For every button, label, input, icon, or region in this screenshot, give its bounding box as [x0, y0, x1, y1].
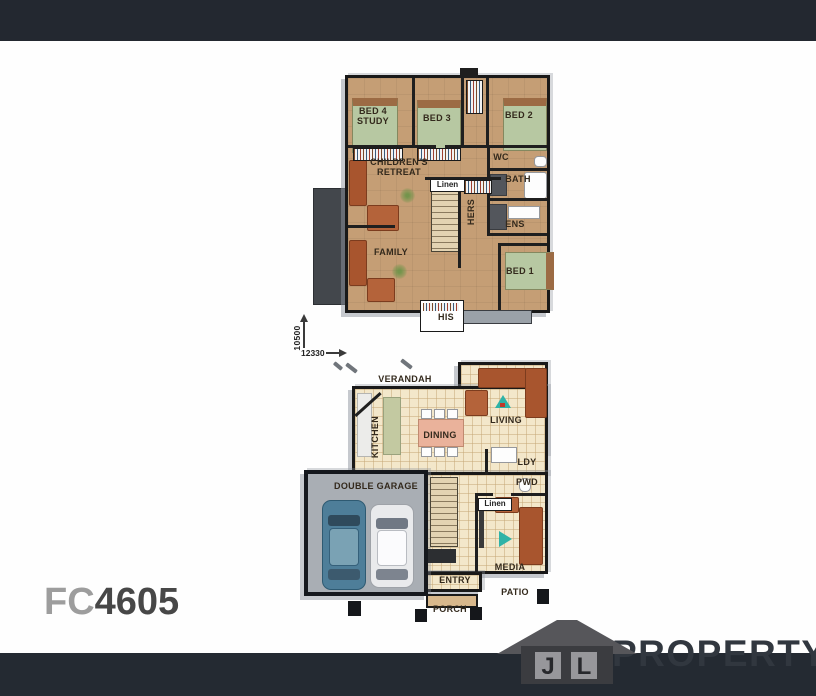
room-label-retreat-line2: RETREAT — [377, 167, 421, 177]
chair-icon — [434, 447, 445, 457]
room-label-ens: ENS — [500, 219, 530, 229]
dimension-line-horizontal — [326, 352, 339, 354]
linen-label-upper: Linen — [430, 179, 465, 192]
wall — [487, 233, 547, 236]
brand-letter-j: J — [541, 653, 554, 680]
ceiling-fan-icon — [400, 188, 415, 203]
wall — [487, 198, 547, 201]
patio-pillar — [537, 589, 549, 604]
car-white-icon — [370, 504, 414, 588]
dimension-arrow-right — [339, 349, 347, 357]
room-label-porch: PORCH — [424, 604, 476, 614]
room-label-living: LIVING — [480, 415, 532, 425]
wardrobe-icon — [464, 180, 492, 194]
room-label-bath: BATH — [500, 174, 536, 184]
sofa-icon — [367, 278, 395, 302]
chair-icon — [421, 447, 432, 457]
car-blue-icon — [322, 500, 366, 590]
wall — [498, 243, 501, 310]
stair-landing — [428, 549, 456, 563]
brand-letter-l: L — [577, 653, 592, 680]
top-bar — [0, 0, 816, 41]
linen-closet-icon — [466, 80, 483, 114]
room-label-bed4-line2: STUDY — [357, 116, 389, 126]
dimension-width: 12330 — [301, 348, 325, 358]
room-label-his: HIS — [428, 312, 464, 322]
floorplan-page: BED 4 STUDY BED 3 BED 2 WC BATH CHILDREN… — [0, 0, 816, 696]
stairs-icon — [430, 477, 458, 547]
wall — [348, 225, 395, 228]
wall — [461, 78, 464, 146]
bed-icon — [503, 98, 547, 151]
room-label-bed1: BED 1 — [498, 266, 542, 276]
room-label-patio: PATIO — [492, 587, 538, 597]
chair-icon — [447, 409, 458, 419]
room-label-bed4: BED 4 STUDY — [345, 106, 401, 126]
wall — [485, 449, 488, 475]
roof-section — [313, 188, 348, 305]
plan-code: FC4605 — [44, 581, 179, 624]
chair-icon — [421, 409, 432, 419]
room-label-wc: WC — [488, 152, 514, 162]
room-label-bed2: BED 2 — [496, 110, 542, 120]
room-label-kitchen: KITCHEN — [370, 412, 380, 462]
roof-step — [460, 310, 532, 324]
toilet-icon — [534, 156, 547, 167]
chair-icon — [447, 447, 458, 457]
plan-code-number: 4605 — [95, 581, 180, 623]
wall — [498, 243, 547, 246]
wall — [486, 78, 489, 146]
fan-center-dot — [500, 403, 505, 407]
room-label-retreat-line1: CHILDREN'S — [370, 157, 428, 167]
room-label-media: MEDIA — [487, 562, 533, 572]
room-label-hers: HERS — [466, 194, 476, 230]
porch-pillar — [348, 601, 361, 616]
entry-media-block — [420, 472, 548, 574]
bed-icon — [417, 100, 461, 151]
stairs-icon — [431, 188, 459, 252]
kitchen-island-icon — [383, 397, 401, 455]
armchair-icon — [465, 390, 488, 416]
room-label-bed3: BED 3 — [415, 113, 459, 123]
room-label-family: FAMILY — [365, 247, 417, 257]
brand-house-icon: J L — [497, 616, 637, 688]
room-label-bed4-line1: BED 4 — [359, 106, 387, 116]
room-label-entry: ENTRY — [433, 575, 477, 585]
wall — [412, 78, 415, 146]
verandah-roof-mark — [345, 362, 358, 373]
vanity-icon — [508, 206, 540, 219]
ceiling-fan-icon — [499, 531, 512, 547]
dimension-line-vertical — [303, 321, 305, 348]
room-label-dining: DINING — [415, 430, 465, 440]
room-label-retreat: CHILDREN'S RETREAT — [362, 157, 436, 177]
chair-icon — [434, 409, 445, 419]
tv-icon — [479, 510, 484, 548]
wall — [487, 168, 547, 171]
linen-label-ground: Linen — [478, 498, 512, 511]
wall — [475, 493, 493, 496]
floor-plan-ground — [300, 358, 562, 624]
ceiling-fan-icon — [392, 264, 407, 279]
room-label-ldy: LDY — [512, 457, 542, 467]
sofa-icon — [478, 368, 527, 388]
sofa-icon — [519, 507, 543, 565]
sofa-icon — [525, 368, 547, 418]
room-label-garage: DOUBLE GARAGE — [330, 481, 422, 491]
verandah-roof-mark — [400, 358, 413, 369]
brand-name: PROPERTY — [612, 633, 816, 675]
room-label-pwd: PWD — [512, 477, 542, 487]
room-label-verandah: VERANDAH — [375, 374, 435, 384]
plan-code-prefix: FC — [44, 581, 95, 623]
roof-stub — [460, 68, 478, 78]
wall — [511, 493, 545, 496]
